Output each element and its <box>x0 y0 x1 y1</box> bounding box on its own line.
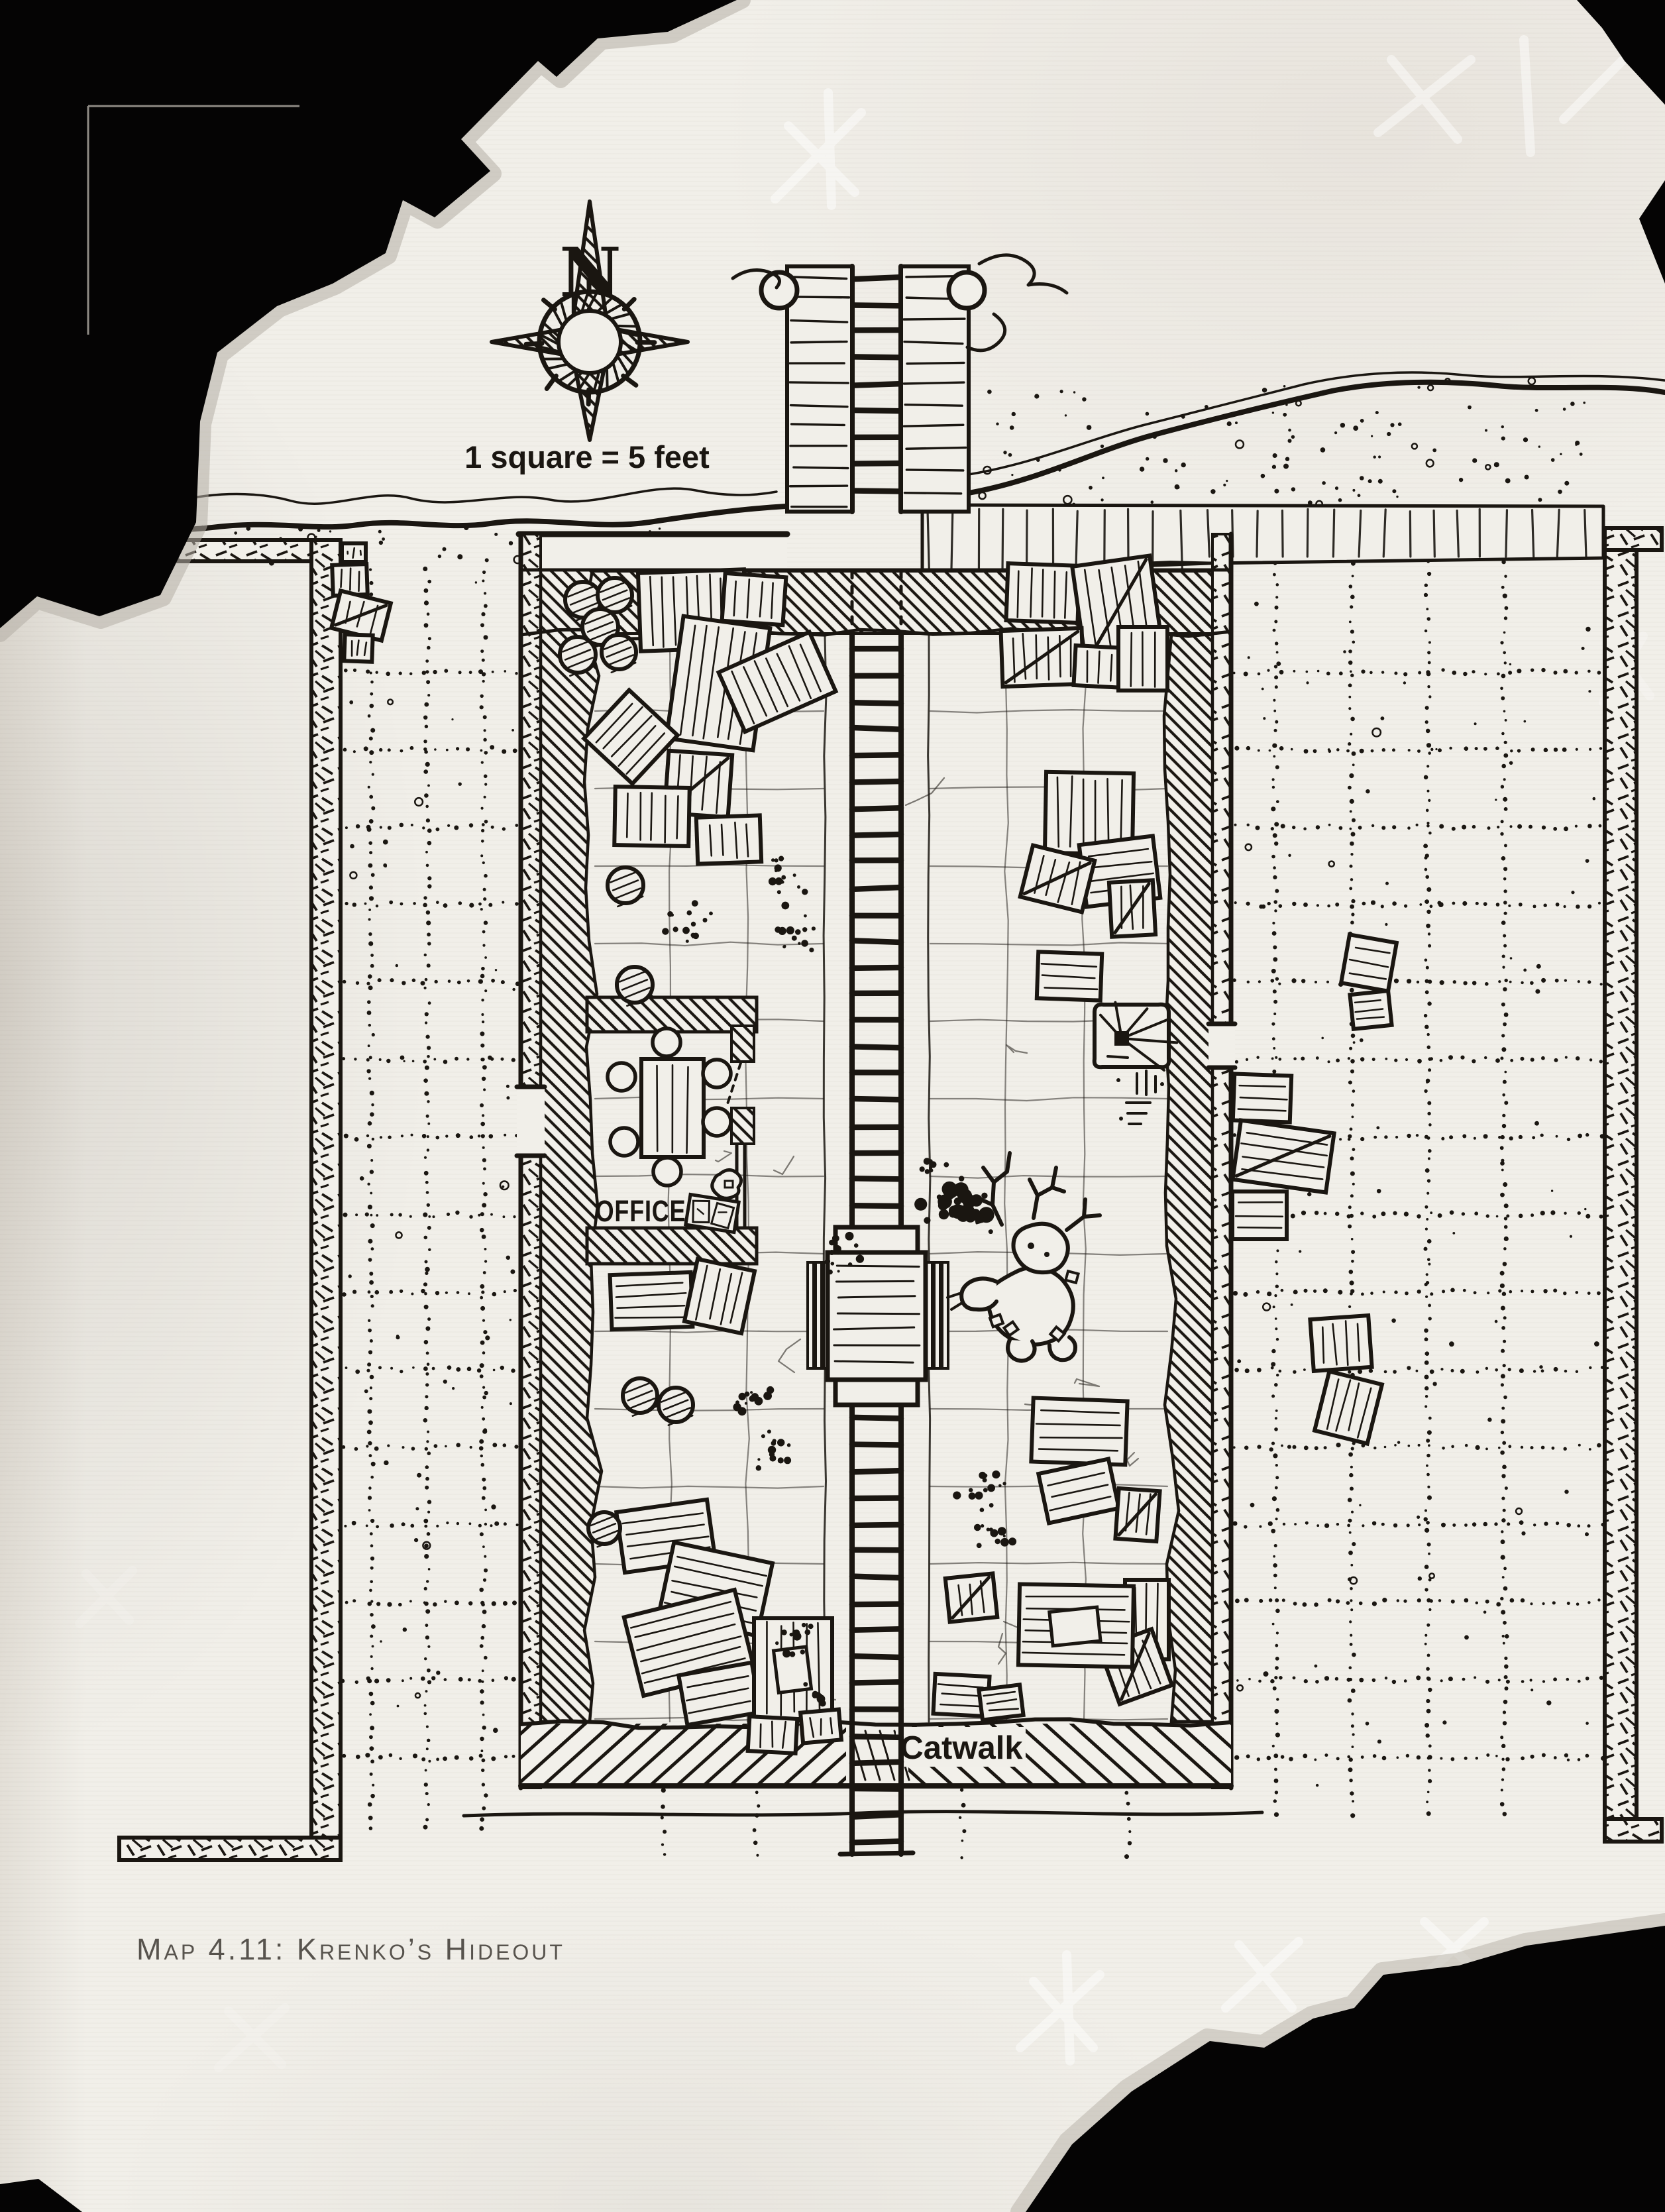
crate <box>610 1272 693 1329</box>
crate <box>945 1573 998 1622</box>
chair <box>653 1158 681 1186</box>
torn-corner-bottom-left <box>0 2179 82 2212</box>
map-caption: Map 4.11: Krenko’s Hideout <box>136 1932 565 1967</box>
crate <box>1310 1315 1371 1371</box>
crate <box>1037 952 1102 1000</box>
crate <box>684 1259 755 1333</box>
rubble-pile <box>733 1386 774 1415</box>
crate <box>332 564 368 596</box>
barrel <box>588 1512 620 1547</box>
crate <box>1315 1371 1382 1443</box>
office-table <box>641 1059 704 1157</box>
crate <box>800 1710 841 1743</box>
catwalk-label: Catwalk <box>895 1730 1028 1767</box>
compass-north-label: N <box>524 233 657 313</box>
map-artwork <box>0 0 1665 2212</box>
office-room-label: OFFICE <box>588 1194 694 1229</box>
barrel <box>608 867 643 907</box>
rubble-pile <box>920 1158 949 1174</box>
crate <box>979 1685 1023 1720</box>
barrel <box>602 635 636 673</box>
chair <box>703 1060 731 1087</box>
crate <box>1031 1398 1127 1465</box>
map-scale-label: 1 square = 5 feet <box>421 439 753 475</box>
barrel <box>659 1388 693 1425</box>
mine-cart <box>808 1227 948 1405</box>
crates <box>331 543 1397 1753</box>
crate <box>722 573 786 625</box>
barrel <box>623 1378 657 1416</box>
chair <box>653 1028 680 1056</box>
crate <box>342 543 366 562</box>
barrel <box>617 967 653 1006</box>
crate <box>1018 1584 1134 1667</box>
rubble-pile <box>914 1176 994 1234</box>
crate <box>1341 934 1397 991</box>
door-gap-west <box>517 1087 545 1156</box>
crate <box>584 690 677 783</box>
crate <box>1232 1121 1334 1193</box>
door-gap-east <box>1208 1024 1235 1068</box>
crate <box>748 1716 798 1753</box>
crate <box>1109 880 1155 936</box>
crate <box>1232 1191 1287 1239</box>
crate <box>696 815 761 863</box>
rubble-pile <box>756 1429 791 1470</box>
north-walkway <box>519 534 787 570</box>
crate <box>344 634 372 661</box>
crate <box>1233 1074 1291 1123</box>
chair <box>608 1063 635 1091</box>
map-page: N 1 square = 5 feet OFFICE Catwalk Map 4… <box>0 0 1665 2212</box>
barrel <box>560 637 596 676</box>
rubble-pile <box>953 1470 1006 1512</box>
rubble-pile <box>769 856 808 910</box>
crate <box>1038 1459 1118 1523</box>
rubble-pile <box>974 1524 1016 1548</box>
crate <box>614 787 690 846</box>
crate <box>1006 563 1080 623</box>
north-bridge <box>733 255 1067 512</box>
chair <box>703 1108 731 1136</box>
crate <box>1118 627 1167 691</box>
chair <box>610 1128 638 1156</box>
crate <box>1350 991 1391 1029</box>
forge-machine <box>1095 1003 1177 1124</box>
crate <box>1115 1488 1159 1541</box>
rubble-pile <box>775 914 816 953</box>
catwalk-band <box>464 1719 1262 1816</box>
crate <box>1001 628 1084 687</box>
